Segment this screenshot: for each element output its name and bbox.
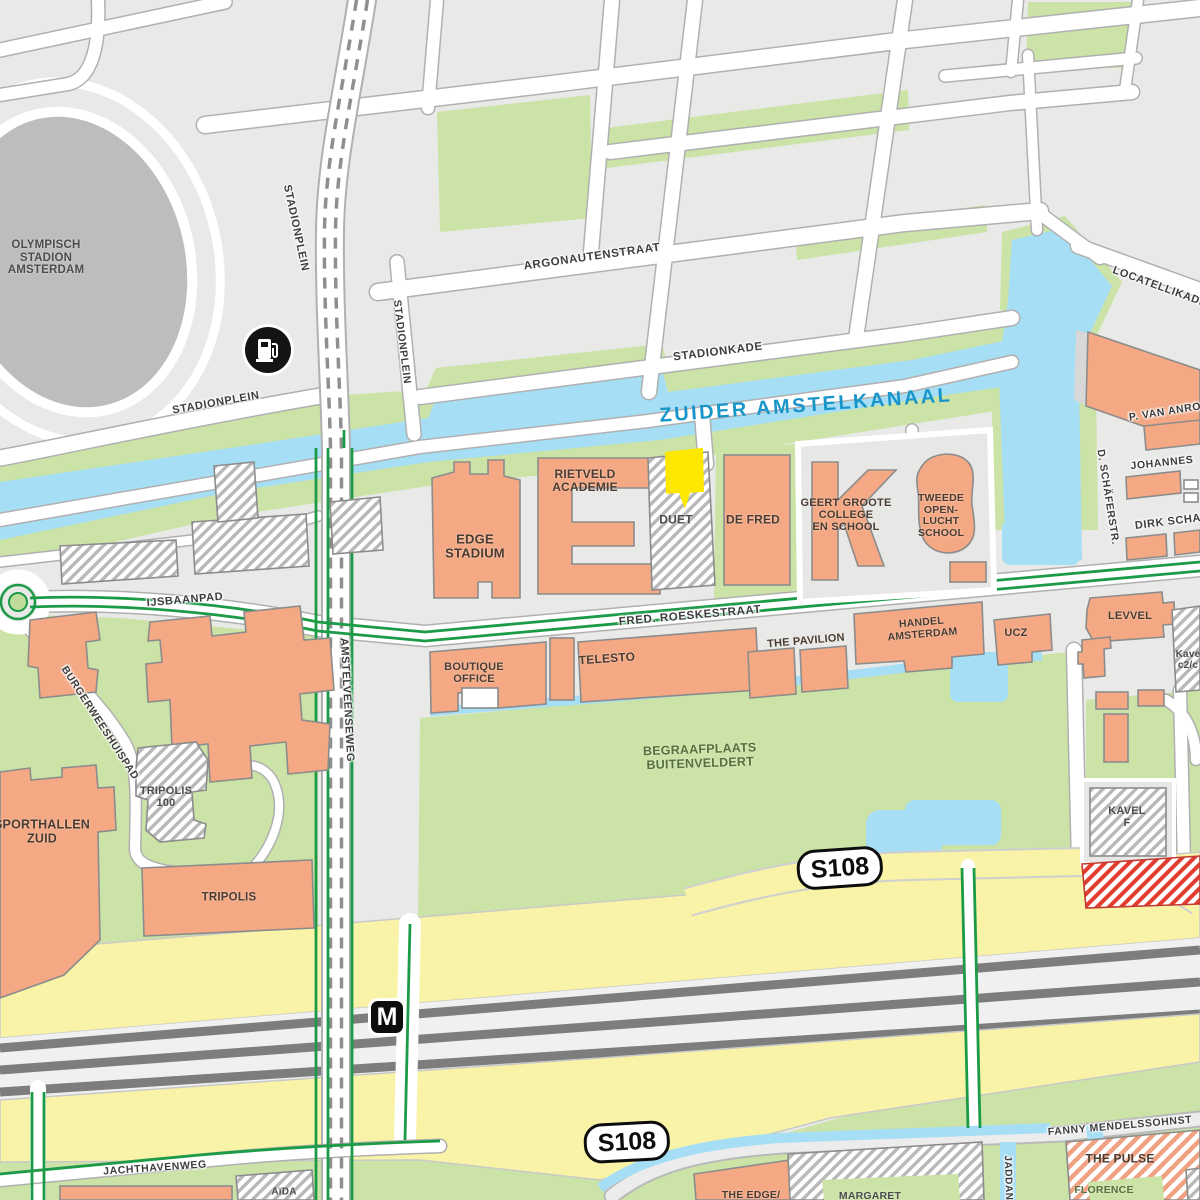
building-kavel-c2: [1172, 606, 1200, 692]
building-duet: [648, 452, 715, 590]
building-aida: [236, 1170, 314, 1200]
building-tripolis: [142, 860, 314, 936]
building-edge-stadium: [432, 460, 520, 598]
building-levvel: [1086, 592, 1175, 642]
jaddan-canal: [1000, 1142, 1016, 1200]
map-canvas: STADIONPLEINSTADIONPLEINSTADIONPLEINARGO…: [0, 0, 1200, 1200]
building-tweede-openlucht: [917, 454, 975, 553]
building-rietveld: [538, 458, 660, 594]
building-telesto: [578, 628, 759, 702]
building-de-fred: [724, 455, 790, 585]
basemap-svg: [0, 0, 1200, 1200]
building-kavel-f: [1090, 788, 1166, 856]
building-tripolis-100: [136, 742, 208, 842]
building-red-hatch: [1082, 856, 1200, 908]
